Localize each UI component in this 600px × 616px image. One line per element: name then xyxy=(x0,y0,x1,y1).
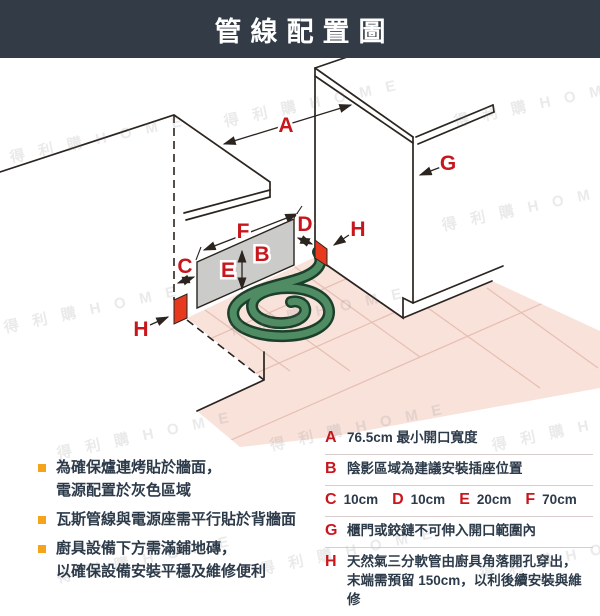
note-item: 瓦斯管線與電源座需平行貼於背牆面 xyxy=(38,508,330,531)
legend-text-line: 末端需預留 150cm，以利後續安裝與維修 xyxy=(347,571,593,609)
watermark: 得 利 購 H O M E xyxy=(452,74,600,132)
legend-letter: G xyxy=(325,521,347,540)
legend-row-g: G 櫃門或鉸鏈不可伸入開口範圍內 xyxy=(325,517,593,548)
dim-c-arrow xyxy=(178,277,194,283)
page-title: 管線配置圖 xyxy=(206,10,395,49)
tiled-floor xyxy=(180,168,600,447)
dim-g-arrow xyxy=(420,167,441,175)
label-g: G xyxy=(440,152,456,175)
legend-text: 天然氣三分軟管由廚具角落開孔穿出， 末端需預留 150cm，以利後續安裝與維修 xyxy=(347,552,593,609)
legend-letter: E xyxy=(459,490,470,509)
legend-value: 10cm xyxy=(344,490,379,509)
legend-letter: H xyxy=(325,552,347,571)
bullet-square-icon xyxy=(38,516,46,524)
watermark: 得 利 購 H O M E xyxy=(55,406,235,464)
legend-value: 10cm xyxy=(411,490,446,509)
tall-cabinet xyxy=(315,55,503,318)
title-bar: 管線配置圖 xyxy=(0,0,600,58)
note-line: 以確保設備安裝平穩及維修便利 xyxy=(56,560,266,583)
label-a: A xyxy=(278,114,293,137)
note-line: 為確保爐連烤貼於牆面， xyxy=(56,456,221,479)
label-d: D xyxy=(297,213,312,236)
label-f: F xyxy=(237,220,250,243)
legend-row-b: B 陰影區域為建議安裝插座位置 xyxy=(325,455,593,486)
hidden-floor-edge xyxy=(187,320,264,380)
legend-text: 陰影區域為建議安裝插座位置 xyxy=(347,459,523,478)
dim-h-left-arrow xyxy=(150,317,168,325)
dim-f-arrow xyxy=(204,214,297,250)
note-line: 廚具設備下方需滿鋪地磚， xyxy=(56,537,266,560)
watermark: 得 利 購 H O M E xyxy=(8,110,188,168)
dimension-arrows xyxy=(150,105,441,325)
legend-dim-pair: D 10cm xyxy=(392,490,445,509)
label-c: C xyxy=(177,255,192,278)
gas-hose-coil xyxy=(233,252,329,336)
legend-dim-pair: C 10cm xyxy=(325,490,378,509)
installation-notes: 為確保爐連烤貼於牆面， 電源配置於灰色區域 瓦斯管線與電源座需平行貼於背牆面 廚… xyxy=(38,456,330,583)
dimension-legend: A 76.5cm 最小開口寬度 B 陰影區域為建議安裝插座位置 C 10cm D… xyxy=(325,424,593,616)
note-item: 廚具設備下方需滿鋪地磚， 以確保設備安裝平穩及維修便利 xyxy=(38,537,330,583)
label-h-right: H xyxy=(350,218,365,241)
legend-value: 70cm xyxy=(542,490,577,509)
label-e: E xyxy=(221,259,235,282)
dim-a-arrow xyxy=(224,105,351,144)
left-counter xyxy=(0,115,270,411)
watermark: 得 利 購 H O M E xyxy=(2,280,182,338)
watermark: 得 利 購 H O M E xyxy=(222,74,402,132)
toe-kick-line xyxy=(403,281,492,318)
legend-dim-pair: F 70cm xyxy=(525,490,576,509)
label-h-left: H xyxy=(133,318,148,341)
hose-exit-marker-right xyxy=(315,240,327,266)
label-b: B xyxy=(254,243,269,266)
legend-letter: F xyxy=(525,490,535,509)
legend-letter: D xyxy=(392,490,404,509)
legend-row-h: H 天然氣三分軟管由廚具角落開孔穿出， 末端需預留 150cm，以利後續安裝與維… xyxy=(325,548,593,616)
hose-exit-marker-left xyxy=(174,294,187,324)
dim-d-arrow xyxy=(298,238,312,244)
legend-letter: C xyxy=(325,490,337,509)
legend-value: 20cm xyxy=(477,490,512,509)
dim-h-right-arrow xyxy=(334,235,349,245)
diagram-labels: A B C D E F G H H xyxy=(133,114,456,341)
legend-text: 櫃門或鉸鏈不可伸入開口範圍內 xyxy=(347,521,536,540)
bullet-square-icon xyxy=(38,464,46,472)
legend-letter: B xyxy=(325,459,347,478)
watermark: 得 利 購 H O M E xyxy=(228,282,408,340)
legend-letter: A xyxy=(325,428,347,447)
legend-text-line: 天然氣三分軟管由廚具角落開孔穿出， xyxy=(347,552,593,571)
legend-text: 76.5cm 最小開口寬度 xyxy=(347,428,478,447)
note-line: 瓦斯管線與電源座需平行貼於背牆面 xyxy=(56,508,296,531)
note-line: 電源配置於灰色區域 xyxy=(56,479,221,502)
legend-row-cdef: C 10cm D 10cm E 20cm F 70cm xyxy=(325,486,593,517)
note-item: 為確保爐連烤貼於牆面， 電源配置於灰色區域 xyxy=(38,456,330,502)
tile-grid xyxy=(180,168,598,447)
socket-zone-panel xyxy=(197,219,294,308)
legend-row-a: A 76.5cm 最小開口寬度 xyxy=(325,424,593,455)
watermark: 得 利 購 H O M E xyxy=(440,178,600,236)
bullet-square-icon xyxy=(38,545,46,553)
legend-dim-pair: E 20cm xyxy=(459,490,511,509)
